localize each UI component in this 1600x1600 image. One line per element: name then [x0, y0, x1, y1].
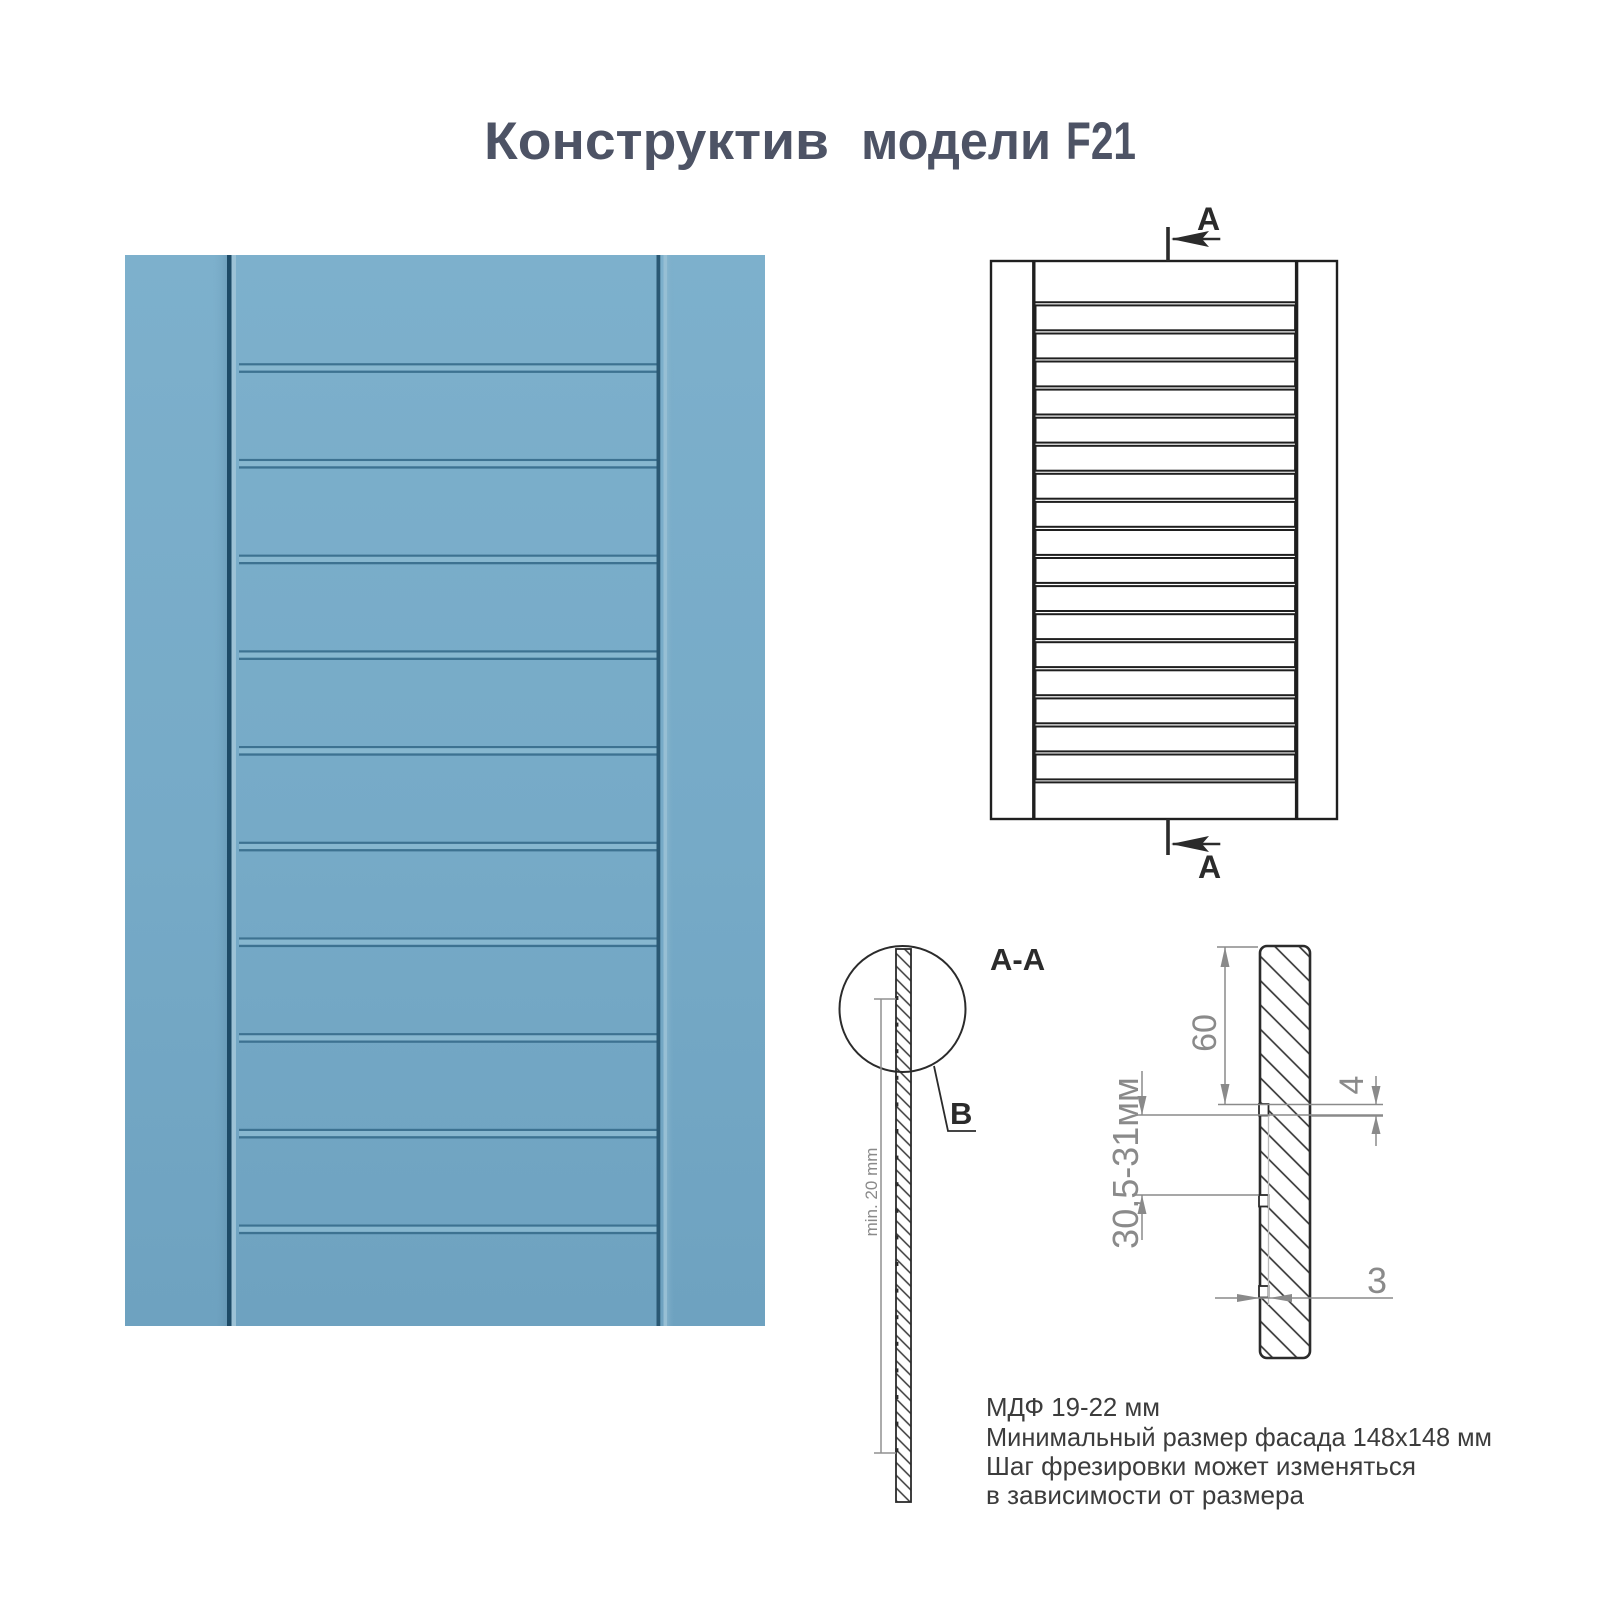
svg-text:A: A	[1198, 849, 1221, 885]
svg-text:3: 3	[1367, 1260, 1387, 1301]
svg-text:МДФ 19-22 мм: МДФ 19-22 мм	[986, 1392, 1160, 1422]
svg-text:min. 20 mm: min. 20 mm	[862, 1148, 881, 1237]
svg-text:Минимальный размер фасада 148х: Минимальный размер фасада 148х148 мм	[986, 1422, 1492, 1452]
svg-text:модели: модели	[861, 112, 1051, 171]
svg-text:4: 4	[1333, 1076, 1371, 1095]
svg-text:F21: F21	[1066, 112, 1136, 171]
svg-text:60: 60	[1186, 1014, 1224, 1052]
svg-text:в зависимости от размера: в зависимости от размера	[986, 1480, 1305, 1510]
svg-text:Конструктив: Конструктив	[484, 112, 829, 171]
svg-text:B: B	[950, 1096, 972, 1131]
svg-text:Шаг фрезировки может изменятьс: Шаг фрезировки может изменяться	[986, 1451, 1416, 1481]
svg-text:A-A: A-A	[990, 942, 1045, 977]
svg-text:30,5-31мм: 30,5-31мм	[1105, 1077, 1146, 1249]
svg-text:A: A	[1197, 201, 1220, 237]
